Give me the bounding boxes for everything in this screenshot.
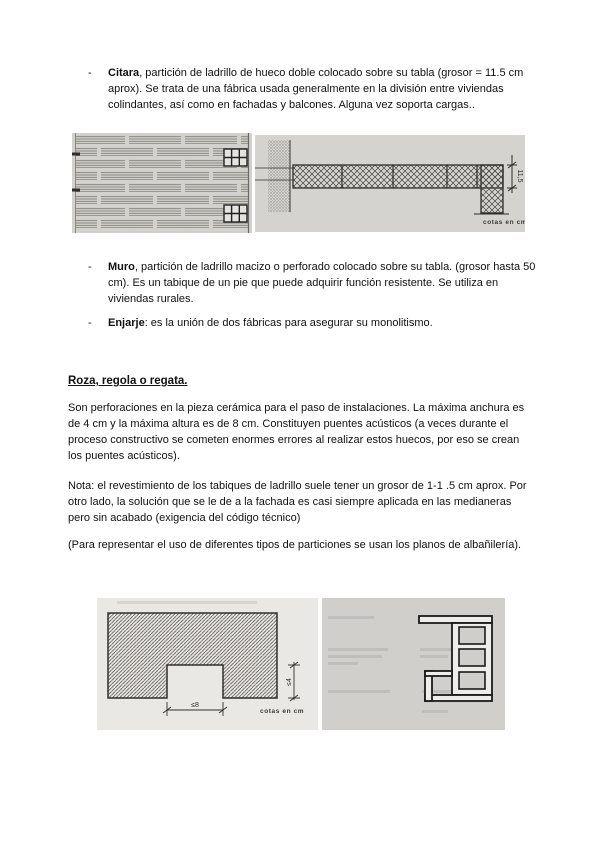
dimension-label: 11,5 xyxy=(516,169,523,182)
units-label: cotas en cm xyxy=(260,708,304,715)
paragraph-planos: (Para representar el uso de diferentes t… xyxy=(68,537,534,553)
paragraph-nota: Nota: el revestimiento de los tabiques d… xyxy=(68,478,534,526)
bullet-marker: - xyxy=(88,259,108,307)
paragraph-roza-definition: Son perforaciones en la pieza cerámica p… xyxy=(68,400,534,464)
bullet-muro-rest: , partición de ladrillo macizo o perfora… xyxy=(108,261,535,305)
roza-section-drawing: ≤8 ≤4 cotas en cm xyxy=(97,598,318,730)
hollow-brick-drawing xyxy=(322,598,505,730)
units-label: cotas en cm xyxy=(483,219,525,226)
bullet-enjarje-rest: : es la unión de dos fábricas para asegu… xyxy=(145,317,433,329)
height-dimension-label: ≤4 xyxy=(286,678,293,686)
bullet-citara-text: Citara, partición de ladrillo de hueco d… xyxy=(108,65,543,113)
bullet-enjarje-term: Enjarje xyxy=(108,317,145,329)
bullet-citara: - Citara, partición de ladrillo de hueco… xyxy=(88,65,543,113)
bullet-marker: - xyxy=(88,65,108,113)
citara-plan-drawing: 11,5 cotas en cm xyxy=(255,135,525,232)
document-page: - Citara, partición de ladrillo de hueco… xyxy=(0,0,600,848)
figure-citara-plan: 11,5 cotas en cm xyxy=(255,135,525,232)
bullet-citara-rest: , partición de ladrillo de hueco doble c… xyxy=(108,67,523,111)
bullet-muro: - Muro, partición de ladrillo macizo o p… xyxy=(88,259,543,307)
hollow-brick-grid-icon xyxy=(224,149,247,166)
bullet-citara-term: Citara xyxy=(108,67,139,79)
figure-roza-section: ≤8 ≤4 cotas en cm xyxy=(97,598,318,730)
bullet-muro-term: Muro xyxy=(108,261,135,273)
section-heading: Roza, regola o regata. xyxy=(68,373,188,389)
figure-hollow-brick-section xyxy=(322,598,505,730)
bullet-muro-text: Muro, partición de ladrillo macizo o per… xyxy=(108,259,543,307)
bullet-enjarje: - Enjarje: es la unión de dos fábricas p… xyxy=(88,315,543,331)
figure-citara-elevation xyxy=(72,133,252,233)
bullet-enjarje-text: Enjarje: es la unión de dos fábricas par… xyxy=(108,315,543,331)
bullet-marker: - xyxy=(88,315,108,331)
width-dimension-label: ≤8 xyxy=(191,702,199,709)
citara-elevation-drawing xyxy=(72,133,252,233)
hollow-brick-grid-icon xyxy=(224,205,247,222)
